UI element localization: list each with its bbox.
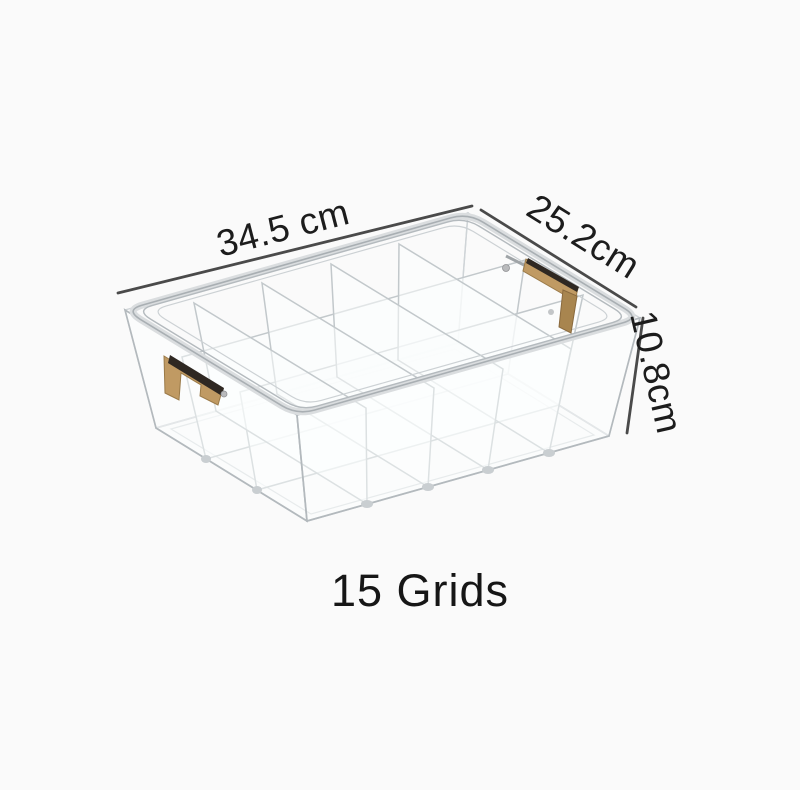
foot-dot xyxy=(252,486,262,494)
screw-dot xyxy=(503,265,510,272)
foot-dot xyxy=(422,483,434,491)
grid-count-caption: 15 Grids xyxy=(331,565,509,616)
screw-dot xyxy=(548,309,554,315)
dimension-label-height: 10.8cm xyxy=(622,307,690,437)
foot-dot xyxy=(482,466,494,474)
screw-dot xyxy=(221,391,227,397)
foot-dot xyxy=(201,455,211,463)
box-illustration: 34.5 cm 25.2cm 10.8cm 15 Grids xyxy=(0,0,800,790)
foot-dot xyxy=(543,449,555,457)
product-figure: 34.5 cm 25.2cm 10.8cm 15 Grids xyxy=(0,0,800,790)
foot-dot xyxy=(361,500,373,508)
